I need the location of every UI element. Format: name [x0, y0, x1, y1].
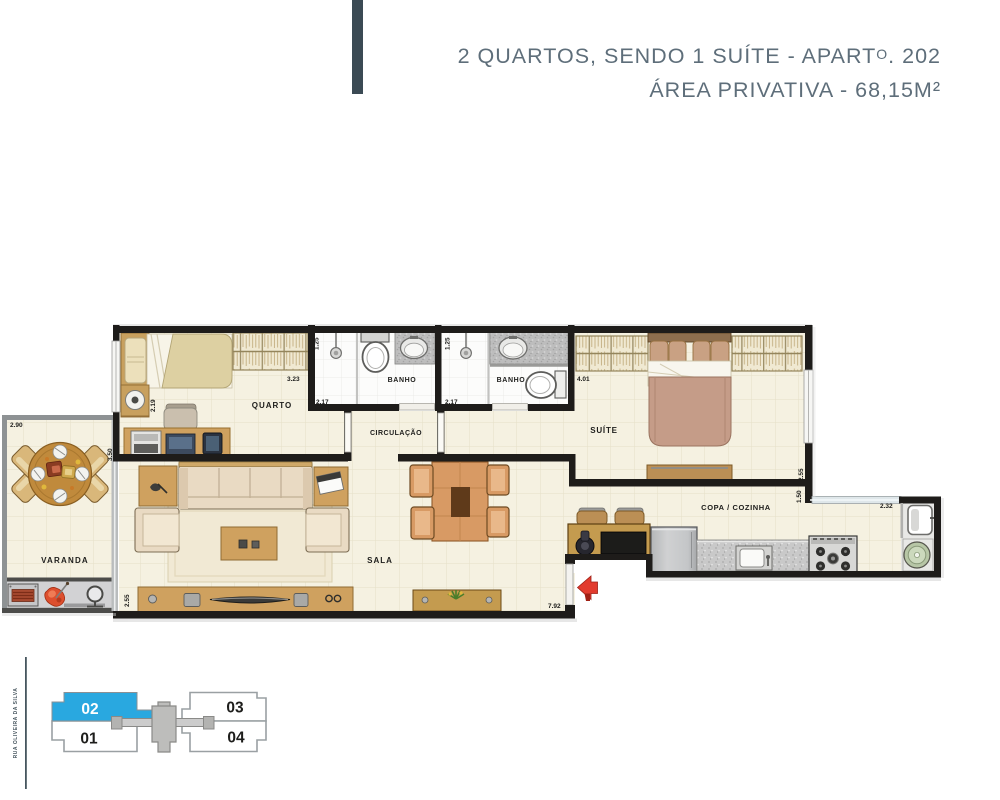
svg-text:2.90: 2.90	[10, 422, 23, 429]
svg-text:SALA: SALA	[367, 556, 393, 565]
svg-text:04: 04	[227, 730, 245, 747]
svg-text:QUARTO: QUARTO	[252, 401, 293, 410]
svg-text:1.50: 1.50	[796, 490, 803, 503]
svg-text:2.55: 2.55	[124, 594, 131, 607]
svg-text:BANHO: BANHO	[497, 377, 526, 384]
svg-text:1.25: 1.25	[314, 337, 321, 350]
svg-text:01: 01	[80, 731, 98, 748]
svg-text:02: 02	[81, 701, 98, 718]
svg-text:3.50: 3.50	[107, 448, 114, 461]
svg-text:COPA / COZINHA: COPA / COZINHA	[701, 503, 771, 512]
svg-text:2 QUARTOS, SENDO 1 SUÍTE - APA: 2 QUARTOS, SENDO 1 SUÍTE - APARTO. 202	[458, 43, 941, 68]
svg-text:2.17: 2.17	[316, 399, 329, 406]
svg-text:ÁREA PRIVATIVA - 68,15M²: ÁREA PRIVATIVA - 68,15M²	[649, 77, 941, 102]
svg-text:4.01: 4.01	[577, 376, 590, 383]
svg-text:03: 03	[226, 700, 244, 717]
svg-text:VARANDA: VARANDA	[41, 556, 89, 565]
svg-text:BANHO: BANHO	[388, 377, 417, 384]
svg-text:2.32: 2.32	[880, 503, 893, 510]
svg-text:2.17: 2.17	[445, 399, 458, 406]
svg-text:1.25: 1.25	[445, 337, 452, 350]
svg-text:2.55: 2.55	[798, 468, 805, 481]
svg-text:RUA OLIVEIRA DA SILVA: RUA OLIVEIRA DA SILVA	[13, 688, 19, 759]
svg-text:7.92: 7.92	[548, 603, 561, 610]
svg-text:2.19: 2.19	[150, 399, 157, 412]
svg-text:3.23: 3.23	[287, 376, 300, 383]
svg-text:CIRCULAÇÃO: CIRCULAÇÃO	[370, 428, 422, 437]
svg-text:SUÍTE: SUÍTE	[590, 426, 618, 435]
